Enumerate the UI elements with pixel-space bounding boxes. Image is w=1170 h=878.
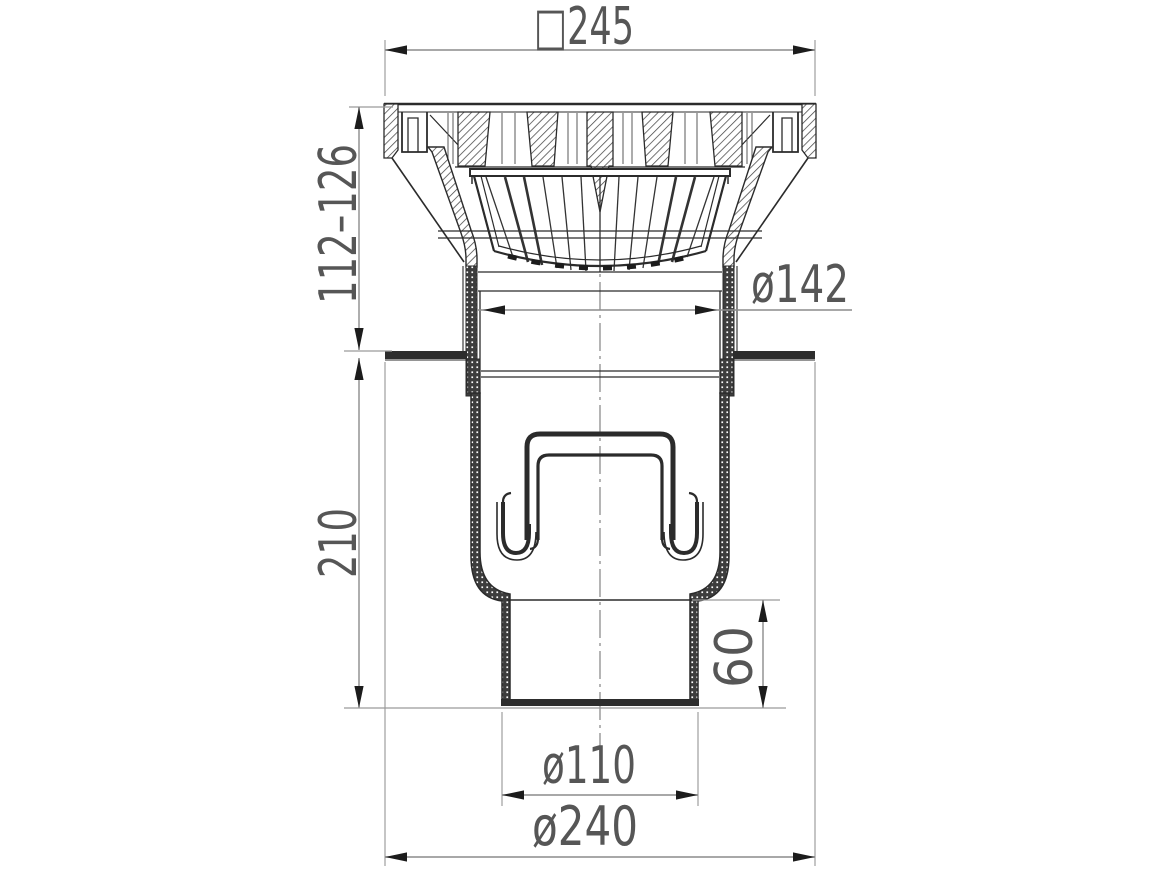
dim-label-outlet-stub: 60	[705, 626, 765, 688]
outlet-spigot	[501, 699, 699, 706]
dim-label-body-height: 210	[309, 508, 369, 578]
dim-label-flange-diameter: ø240	[532, 795, 638, 858]
technical-drawing: □245 112–126 ø142 210 60 ø110	[0, 0, 1170, 878]
dim-label-outlet-diameter: ø110	[542, 736, 636, 796]
dim-label-upper-diameter: ø142	[751, 255, 849, 315]
dim-label-top-width: □245	[534, 0, 634, 57]
drawing-canvas: □245 112–126 ø142 210 60 ø110	[0, 0, 1170, 878]
dim-label-height-range: 112–126	[309, 144, 369, 304]
